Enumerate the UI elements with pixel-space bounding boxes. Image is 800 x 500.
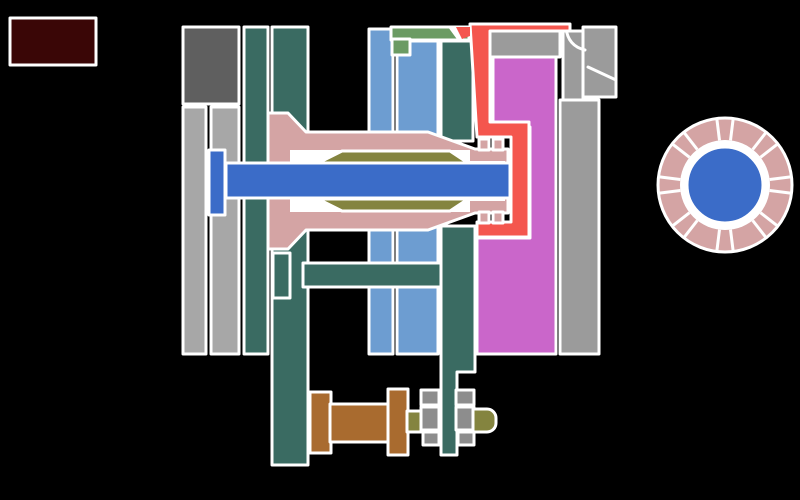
locating-ring-bore bbox=[687, 147, 763, 223]
diagram-canvas bbox=[0, 0, 800, 500]
washer-right-mid bbox=[456, 407, 474, 430]
washer-right-top bbox=[456, 390, 474, 405]
top-cover-bar-leg bbox=[392, 39, 410, 55]
thread-crest bbox=[479, 139, 489, 150]
shaft-flange bbox=[209, 150, 225, 215]
washer-left-bottom bbox=[423, 432, 439, 445]
washer-right-bottom bbox=[458, 432, 474, 445]
locating-ring bbox=[658, 118, 792, 252]
mold-cross-section-diagram bbox=[0, 0, 800, 500]
washer-left-mid bbox=[421, 407, 439, 430]
backing-plate-left-outer bbox=[183, 107, 206, 354]
rod-flange-right bbox=[388, 389, 408, 455]
legend-swatch bbox=[10, 18, 96, 65]
rod-flange-left bbox=[310, 392, 331, 453]
thread-crest bbox=[493, 212, 503, 223]
right-column-main bbox=[560, 100, 599, 354]
rod-spacer bbox=[407, 411, 421, 432]
stop-pad bbox=[273, 253, 290, 298]
top-clamp-block bbox=[183, 27, 239, 104]
washer-left-top bbox=[421, 390, 439, 405]
guide-column-3-upper bbox=[441, 41, 473, 141]
rod-spool bbox=[330, 404, 389, 442]
thread-crest bbox=[493, 139, 503, 150]
corner-block-top-right bbox=[583, 27, 616, 97]
liner-wedge-upper bbox=[318, 151, 468, 163]
liner-wedge-lower bbox=[318, 199, 468, 211]
backing-plate-left-inner bbox=[211, 107, 239, 354]
top-plate-right bbox=[490, 31, 560, 57]
ejector-cross-bar bbox=[303, 263, 441, 287]
right-column-upper bbox=[563, 31, 583, 100]
thread-crest bbox=[479, 212, 489, 223]
shaft bbox=[226, 163, 510, 198]
bolt-tip bbox=[473, 409, 496, 432]
